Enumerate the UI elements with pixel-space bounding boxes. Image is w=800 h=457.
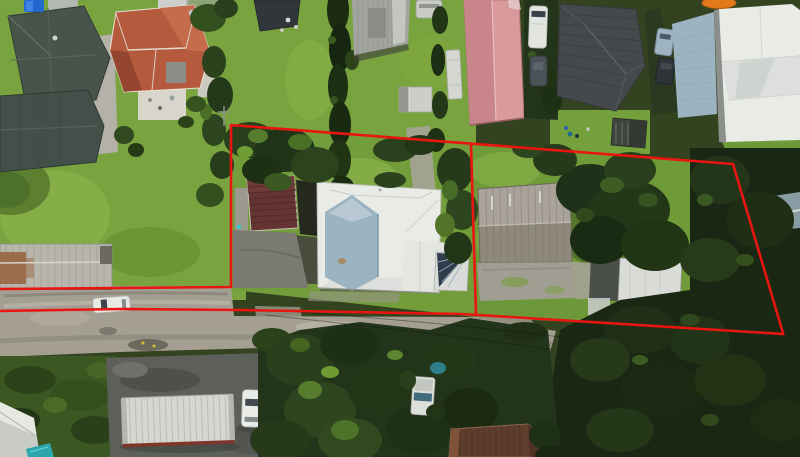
driveway (233, 230, 308, 288)
parked-car-blue (654, 28, 674, 56)
rusty-roof-section (0, 252, 26, 284)
dark-car (530, 56, 547, 86)
dark-roof-corner (254, 0, 300, 31)
white-van (528, 6, 547, 49)
blue-gray-roof-section (672, 12, 717, 118)
orange-shade-sail (702, 0, 736, 9)
parked-car-dark (655, 57, 675, 85)
dog-speck (338, 258, 346, 264)
truck-trailer (121, 394, 235, 447)
long-shed (0, 244, 112, 290)
aerial-photo (0, 0, 800, 457)
white-modern-house (645, 0, 800, 143)
main-house (317, 182, 441, 293)
teal-tarp (430, 362, 446, 374)
small-white-shed-top (399, 87, 432, 112)
white-deck (138, 88, 186, 120)
charcoal-tile-house (557, 4, 645, 111)
aerial-photo-canvas (0, 0, 800, 457)
pink-outbuilding (464, 0, 524, 125)
dark-green-roof-house-2 (0, 90, 104, 172)
teal-bin (237, 225, 241, 229)
dark-garden-shed (611, 118, 647, 148)
white-caravan (446, 50, 463, 100)
